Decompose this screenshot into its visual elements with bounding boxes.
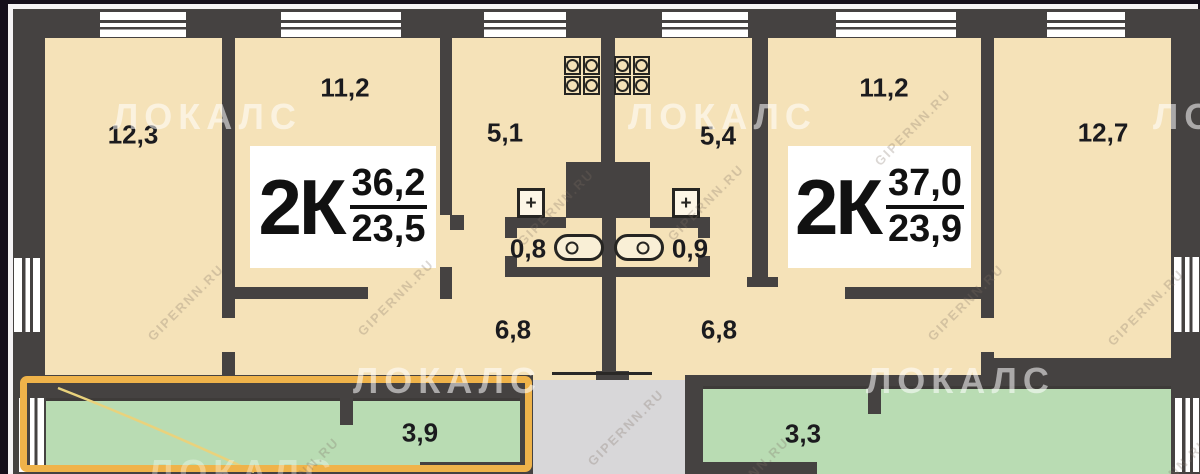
wall xyxy=(222,352,235,375)
wall xyxy=(222,287,368,299)
stove-icon xyxy=(564,56,600,95)
room-area-label: 3,9 xyxy=(402,418,438,449)
apartment-label-left: 2К 36,2 23,5 xyxy=(250,146,436,268)
room-area-label: 12,7 xyxy=(1078,118,1129,149)
burner-icon xyxy=(564,56,581,75)
window-icon xyxy=(14,258,40,332)
wall xyxy=(440,267,452,299)
entry-line xyxy=(552,372,652,375)
window-icon xyxy=(836,12,956,37)
wall xyxy=(752,38,768,277)
apartment-living-area: 23,9 xyxy=(888,209,962,250)
wall xyxy=(515,267,605,277)
room-area-label: 11,2 xyxy=(859,73,908,104)
wall xyxy=(747,277,778,287)
burner-icon xyxy=(614,56,631,75)
wall xyxy=(602,218,616,375)
wall xyxy=(222,38,235,318)
burner-icon xyxy=(583,76,600,95)
room-area-label: 6,8 xyxy=(701,315,737,346)
burner-icon xyxy=(583,56,600,75)
room-area-label: 11,2 xyxy=(320,73,369,104)
wall xyxy=(616,267,705,277)
floor-plan: + + 12,3 11,2 5,1 0,8 6,8 3,9 5,4 11,2 1… xyxy=(0,0,1200,474)
window-icon xyxy=(281,12,401,37)
toilet-icon xyxy=(614,234,664,261)
toilet-icon xyxy=(554,234,604,261)
brand-watermark: ЛОКАЛС xyxy=(628,96,817,138)
wall xyxy=(601,38,615,162)
burner-icon xyxy=(614,76,631,95)
burner-icon xyxy=(564,76,581,95)
burner-icon xyxy=(633,76,650,95)
window-icon xyxy=(1047,12,1125,37)
room-area-label: 6,8 xyxy=(495,315,531,346)
wall xyxy=(450,215,464,230)
brand-watermark: ЛОКАЛС xyxy=(1153,96,1200,138)
brand-watermark: ЛОКАЛС xyxy=(866,360,1055,402)
apartment-type: 2К xyxy=(795,168,880,246)
window-icon xyxy=(484,12,566,37)
window-icon xyxy=(100,12,186,37)
apartment-total-area: 36,2 xyxy=(350,164,428,209)
wall xyxy=(440,38,452,215)
apartment-type: 2К xyxy=(259,168,344,246)
brand-watermark: ЛОКАЛС xyxy=(353,360,542,402)
apartment-areas: 37,0 23,9 xyxy=(886,164,964,250)
apartment-total-area: 37,0 xyxy=(886,164,964,209)
brand-watermark: ЛОКАЛС xyxy=(113,96,302,138)
apartment-areas: 36,2 23,5 xyxy=(350,164,428,250)
burner-icon xyxy=(633,56,650,75)
apartment-living-area: 23,5 xyxy=(352,209,426,250)
stove-icon xyxy=(614,56,650,95)
room-area-label: 5,1 xyxy=(487,118,523,149)
window-icon xyxy=(662,12,748,37)
